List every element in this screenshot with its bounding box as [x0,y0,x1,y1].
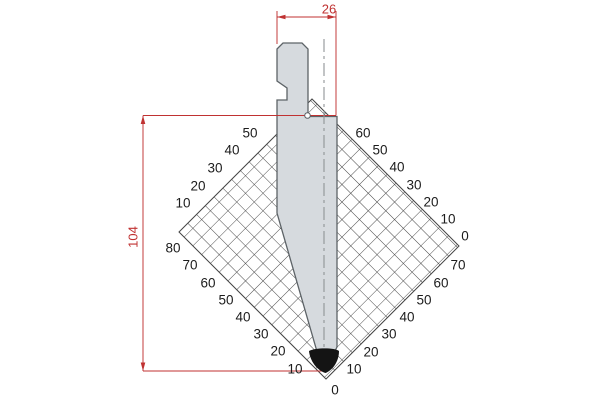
arrow-left-icon [277,15,286,20]
scale-label: 10 [346,362,361,377]
arrow-down-icon [141,363,146,372]
scale-label: 30 [406,178,421,193]
scale-label: 50 [218,293,233,308]
arrow-up-icon [141,116,146,125]
scale-label: 40 [399,310,414,325]
scale-label: 30 [207,161,222,176]
technical-drawing: 26 104 50 40 30 20 10 60 50 40 30 20 10 … [0,0,600,400]
scale-label: 20 [190,179,205,194]
scale-label: 0 [461,229,469,244]
scale-label: 60 [200,276,215,291]
scale-label: 10 [287,362,302,377]
scale-label: 30 [253,327,268,342]
scale-label: 50 [372,143,387,158]
scale-label: 10 [175,196,190,211]
scale-label: 50 [416,293,431,308]
scale-label: 40 [389,160,404,175]
width-dimension-value: 26 [322,2,336,17]
scale-label: 50 [242,126,257,141]
scale-label: 40 [224,143,239,158]
relief-groove [305,113,311,119]
punch-drawing-canvas: 26 104 50 40 30 20 10 60 50 40 30 20 10 … [0,0,600,400]
scale-label: 20 [423,195,438,210]
scale-label: 60 [433,276,448,291]
scale-label: 70 [182,258,197,273]
scale-label: 20 [363,345,378,360]
scale-label: 40 [235,310,250,325]
scale-label-zero: 0 [331,383,339,398]
scale-label: 60 [355,126,370,141]
scale-label: 70 [450,258,465,273]
scale-label: 10 [440,212,455,227]
height-dimension-value: 104 [126,226,141,248]
scale-label: 20 [270,344,285,359]
scale-label: 80 [165,241,180,256]
scale-label: 30 [381,327,396,342]
